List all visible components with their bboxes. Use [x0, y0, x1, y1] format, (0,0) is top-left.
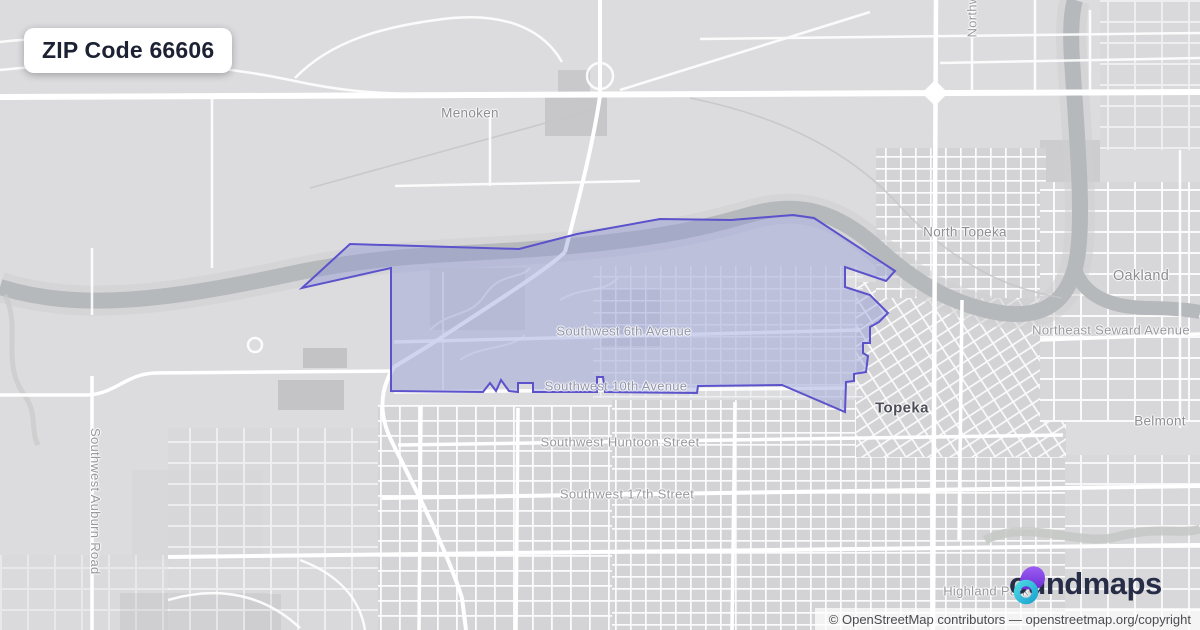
- label-sw-10th-avenue: Southwest 10th Avenue: [545, 379, 688, 394]
- label-sw-6th-avenue: Southwest 6th Avenue: [556, 324, 691, 339]
- osm-copyright-link[interactable]: © OpenStreetMap contributors — openstree…: [829, 612, 1191, 627]
- label-northeast-seward-avenue: Northeast Seward Avenue: [1032, 323, 1190, 338]
- zip-code-title-badge: ZIP Code 66606: [24, 28, 232, 73]
- label-northwest-truncated: Northw: [965, 0, 980, 37]
- label-sw-17th-street: Southwest 17th Street: [560, 487, 694, 502]
- label-north-topeka: North Topeka: [923, 225, 1007, 240]
- basemap: [0, 0, 1200, 630]
- boundmaps-b-icon: [1012, 564, 1052, 608]
- map-canvas[interactable]: Menoken North Topeka Oakland Northeast S…: [0, 0, 1200, 630]
- boundmaps-logo[interactable]: oundmaps: [1012, 564, 1162, 604]
- zip-code-title: ZIP Code 66606: [42, 37, 214, 63]
- label-menoken: Menoken: [441, 106, 499, 121]
- label-belmont: Belmont: [1134, 414, 1186, 429]
- label-oakland: Oakland: [1113, 268, 1169, 284]
- label-sw-auburn-road: Southwest Auburn Road: [88, 428, 103, 575]
- interchange-diamond: [922, 80, 948, 106]
- label-sw-huntoon-street: Southwest Huntoon Street: [541, 435, 700, 450]
- attribution-bar: © OpenStreetMap contributors — openstree…: [815, 608, 1200, 630]
- label-topeka: Topeka: [875, 400, 929, 417]
